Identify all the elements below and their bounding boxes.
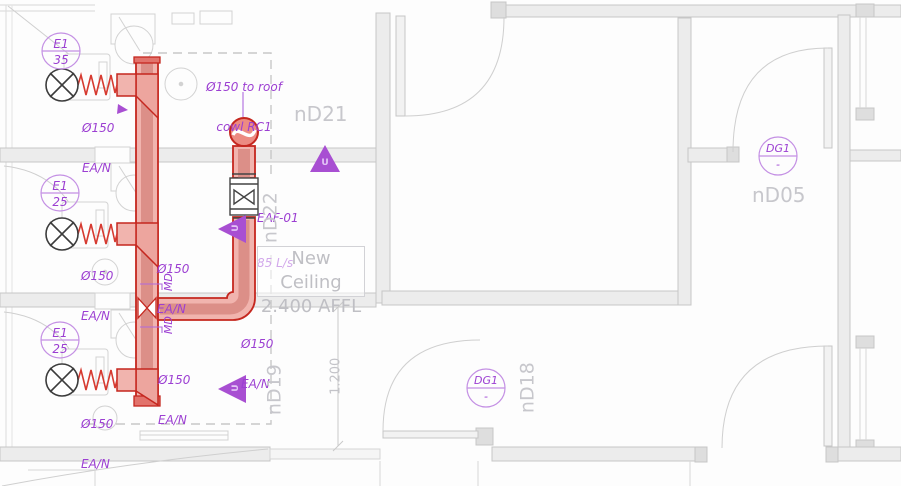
md-damper-label-2: MD — [163, 310, 175, 340]
room-label-nd18: nD18 — [517, 360, 538, 416]
md-damper-label-1: MD — [163, 267, 175, 297]
u-symbol-1-label: U — [317, 158, 333, 168]
size-dia: Ø150 — [81, 418, 113, 431]
e1-tag-2-value: 25 — [40, 196, 80, 209]
dimension-label: 1.200 — [330, 350, 345, 402]
leader-arrowhead — [117, 104, 128, 114]
roof-note-line2: cowl RC1 — [195, 121, 293, 134]
hvac-floor-plan-drawing: E1 35 E1 25 E1 25 Ø150 to roof cowl RC1 … — [0, 0, 901, 486]
roof-note-line1: Ø150 to roof — [195, 81, 293, 94]
size-label-2: Ø150 EA/N — [81, 243, 113, 351]
size-sys: EA/N — [81, 310, 113, 323]
room-label-nd22: nD22 — [260, 183, 281, 253]
size-label-6: Ø150 EA/N — [81, 391, 113, 486]
roof-cowl-note: Ø150 to roof cowl RC1 — [195, 54, 293, 162]
size-sys: EA/N — [81, 458, 113, 471]
plan-canvas — [0, 0, 901, 486]
e1-tag-3-value: 25 — [40, 343, 80, 356]
size-dia: Ø150 — [241, 338, 273, 351]
u-symbol-2-label: U — [231, 220, 241, 236]
size-sys: EA/N — [82, 162, 114, 175]
dg1-tag-1-value: - — [758, 159, 798, 171]
ceiling-note-line2: 2.400 AFFL — [258, 295, 364, 319]
e1-tag-1-value: 35 — [41, 54, 81, 67]
room-label-nd19: nD19 — [264, 362, 285, 418]
u-symbol-3-label: U — [231, 380, 241, 396]
dg1-tag-2-code: DG1 — [466, 375, 506, 387]
size-dia: Ø150 — [82, 122, 114, 135]
size-dia: Ø150 — [158, 374, 190, 387]
e1-tag-1-code: E1 — [41, 38, 81, 51]
room-label-nd05: nD05 — [752, 184, 806, 206]
e1-tag-3-code: E1 — [40, 327, 80, 340]
ceiling-note-line1: New Ceiling — [258, 247, 364, 295]
e1-tag-2-code: E1 — [40, 180, 80, 193]
inline-fan-eaf01 — [230, 174, 258, 218]
dg1-tag-2-value: - — [466, 391, 506, 403]
room-label-nd21: nD21 — [294, 103, 348, 125]
dg1-tag-1-code: DG1 — [758, 143, 798, 155]
size-sys: EA/N — [158, 414, 190, 427]
size-label-1: Ø150 EA/N — [82, 95, 114, 203]
size-label-5: Ø150 EA/N — [158, 347, 190, 455]
ceiling-note-box: New Ceiling 2.400 AFFL — [257, 246, 365, 297]
size-dia: Ø150 — [81, 270, 113, 283]
